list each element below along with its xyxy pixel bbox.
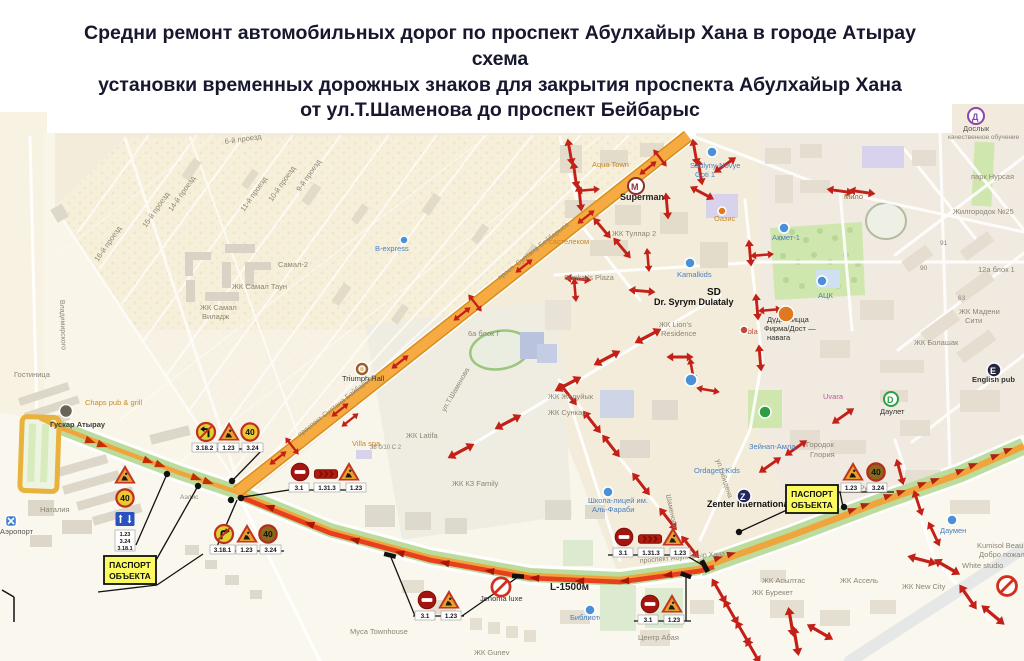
svg-text:91: 91 (940, 240, 948, 247)
svg-text:АЦК: АЦК (818, 291, 834, 300)
svg-text:90: 90 (920, 265, 928, 272)
svg-text:ЖК Gunev: ЖК Gunev (474, 648, 510, 657)
svg-text:навага: навага (767, 333, 791, 342)
svg-text:ЖК Сункар: ЖК Сункар (548, 408, 586, 417)
svg-text:ПАСПОРТ: ПАСПОРТ (109, 560, 151, 570)
svg-text:Мило: Мило (844, 192, 863, 201)
svg-text:Goti 1: Goti 1 (695, 170, 715, 179)
svg-text:3.18.1: 3.18.1 (117, 546, 132, 552)
svg-text:3.24: 3.24 (246, 445, 259, 452)
svg-text:Аль-Фараби: Аль-Фараби (592, 505, 634, 514)
svg-text:Дослык: Дослык (963, 124, 990, 133)
svg-text:ЖК Болашак: ЖК Болашак (914, 338, 959, 347)
svg-text:Городок: Городок (806, 440, 834, 449)
svg-text:3.18.2: 3.18.2 (196, 445, 214, 452)
svg-text:Фирма/Дост —: Фирма/Дост — (764, 324, 816, 333)
svg-text:ЖК Самал: ЖК Самал (200, 303, 237, 312)
svg-text:Даулет: Даулет (880, 407, 905, 416)
svg-text:L-1500м: L-1500м (550, 582, 589, 593)
svg-text:Sunkar's Plaza: Sunkar's Plaza (564, 273, 615, 282)
svg-text:1.23: 1.23 (674, 550, 687, 557)
svg-text:1.23: 1.23 (120, 532, 131, 538)
svg-text:ЖК Latifa: ЖК Latifa (406, 431, 439, 440)
svg-text:Dr. Syrym Dulataly: Dr. Syrym Dulataly (654, 297, 734, 307)
svg-text:Даумен: Даумен (940, 526, 966, 535)
svg-text:Сити: Сити (965, 316, 982, 325)
svg-text:White studio: White studio (962, 561, 1003, 570)
svg-text:ЖК Тулпар 2: ЖК Тулпар 2 (612, 229, 656, 238)
svg-text:1.23: 1.23 (845, 485, 858, 492)
svg-text:Гускар Атырау: Гускар Атырау (50, 420, 106, 429)
svg-text:12а блок 1: 12а блок 1 (978, 265, 1015, 274)
svg-text:ЖК КЗ Family: ЖК КЗ Family (452, 479, 499, 488)
svg-text:E: E (990, 366, 996, 376)
svg-text:1.23: 1.23 (350, 485, 363, 492)
svg-text:Центр Абая: Центр Абая (638, 633, 679, 642)
svg-text:ОБЪЕКТА: ОБЪЕКТА (109, 571, 151, 581)
svg-text:Saulyny-Novye: Saulyny-Novye (690, 161, 740, 170)
svg-text:ЖК Жеруйык: ЖК Жеруйык (548, 392, 594, 401)
svg-text:Глория: Глория (810, 450, 835, 459)
svg-text:1.31.3: 1.31.3 (642, 550, 660, 557)
svg-text:качественное обучение: качественное обучение (948, 133, 1020, 141)
svg-text:6а блок Г: 6а блок Г (468, 329, 500, 338)
svg-text:Оазис: Оазис (714, 214, 736, 223)
svg-text:ЖК Ассель: ЖК Ассель (840, 576, 878, 585)
svg-text:Аэропорт: Аэропорт (0, 527, 34, 536)
svg-text:Residence: Residence (661, 329, 696, 338)
svg-text:Виладж: Виладж (202, 312, 229, 321)
svg-text:Гостиница: Гостиница (14, 370, 51, 379)
svg-text:3.18.1: 3.18.1 (214, 547, 232, 554)
svg-text:3.24: 3.24 (872, 485, 885, 492)
svg-text:ПАСПОРТ: ПАСПОРТ (791, 489, 833, 499)
svg-text:3.24: 3.24 (120, 539, 132, 545)
svg-text:3.1: 3.1 (619, 550, 628, 557)
svg-text:3.1: 3.1 (295, 485, 304, 492)
svg-text:D: D (887, 395, 894, 405)
svg-text:ЖК Lion's: ЖК Lion's (659, 320, 692, 329)
svg-text:1.23: 1.23 (240, 547, 253, 554)
svg-text:ОБЪЕКТА: ОБЪЕКТА (791, 500, 833, 510)
svg-text:Добро пожал: Добро пожал (979, 550, 1024, 559)
svg-text:ЖК Бурекет: ЖК Бурекет (752, 588, 793, 597)
svg-text:38 б/10 С 2: 38 б/10 С 2 (370, 445, 402, 451)
svg-text:Myca Townhouse: Myca Townhouse (350, 627, 408, 636)
svg-text:Uvara: Uvara (823, 392, 844, 401)
svg-text:Школа-лицей им.: Школа-лицей им. (588, 496, 648, 505)
svg-text:1.23: 1.23 (445, 613, 458, 620)
svg-text:Aqua Town: Aqua Town (592, 160, 629, 169)
svg-text:3.1: 3.1 (421, 613, 430, 620)
svg-text:Kumisol Beau: Kumisol Beau (977, 541, 1023, 550)
svg-text:1.23: 1.23 (222, 445, 235, 452)
svg-text:B-express: B-express (375, 244, 409, 253)
svg-text:ЖК New City: ЖК New City (902, 582, 946, 591)
svg-text:Ахмет-1: Ахмет-1 (772, 233, 800, 242)
svg-text:Superman: Superman (620, 192, 664, 202)
svg-text:ЖК Мадени: ЖК Мадени (959, 307, 1000, 316)
svg-text:Kamalkids: Kamalkids (677, 270, 712, 279)
svg-text:Зейнап-Амла: Зейнап-Амла (749, 442, 796, 451)
svg-text:3.24: 3.24 (264, 547, 277, 554)
svg-text:M: M (631, 182, 639, 192)
svg-text:1.31.3: 1.31.3 (318, 485, 336, 492)
svg-text:парк Нурсая: парк Нурсая (971, 172, 1014, 181)
svg-text:ЖК Самал Таун: ЖК Самал Таун (232, 282, 287, 291)
svg-text:ЖК Асылтас: ЖК Асылтас (762, 576, 805, 585)
svg-text:63: 63 (958, 295, 966, 302)
svg-text:Жилгородок №25: Жилгородок №25 (953, 207, 1014, 216)
svg-text:Наталия: Наталия (40, 505, 70, 514)
svg-text:3.1: 3.1 (644, 617, 653, 624)
svg-text:Самал-2: Самал-2 (278, 260, 308, 269)
svg-text:1.23: 1.23 (668, 617, 681, 624)
svg-text:Z: Z (740, 492, 746, 502)
svg-text:Chaps pub & grill: Chaps pub & grill (85, 398, 142, 407)
